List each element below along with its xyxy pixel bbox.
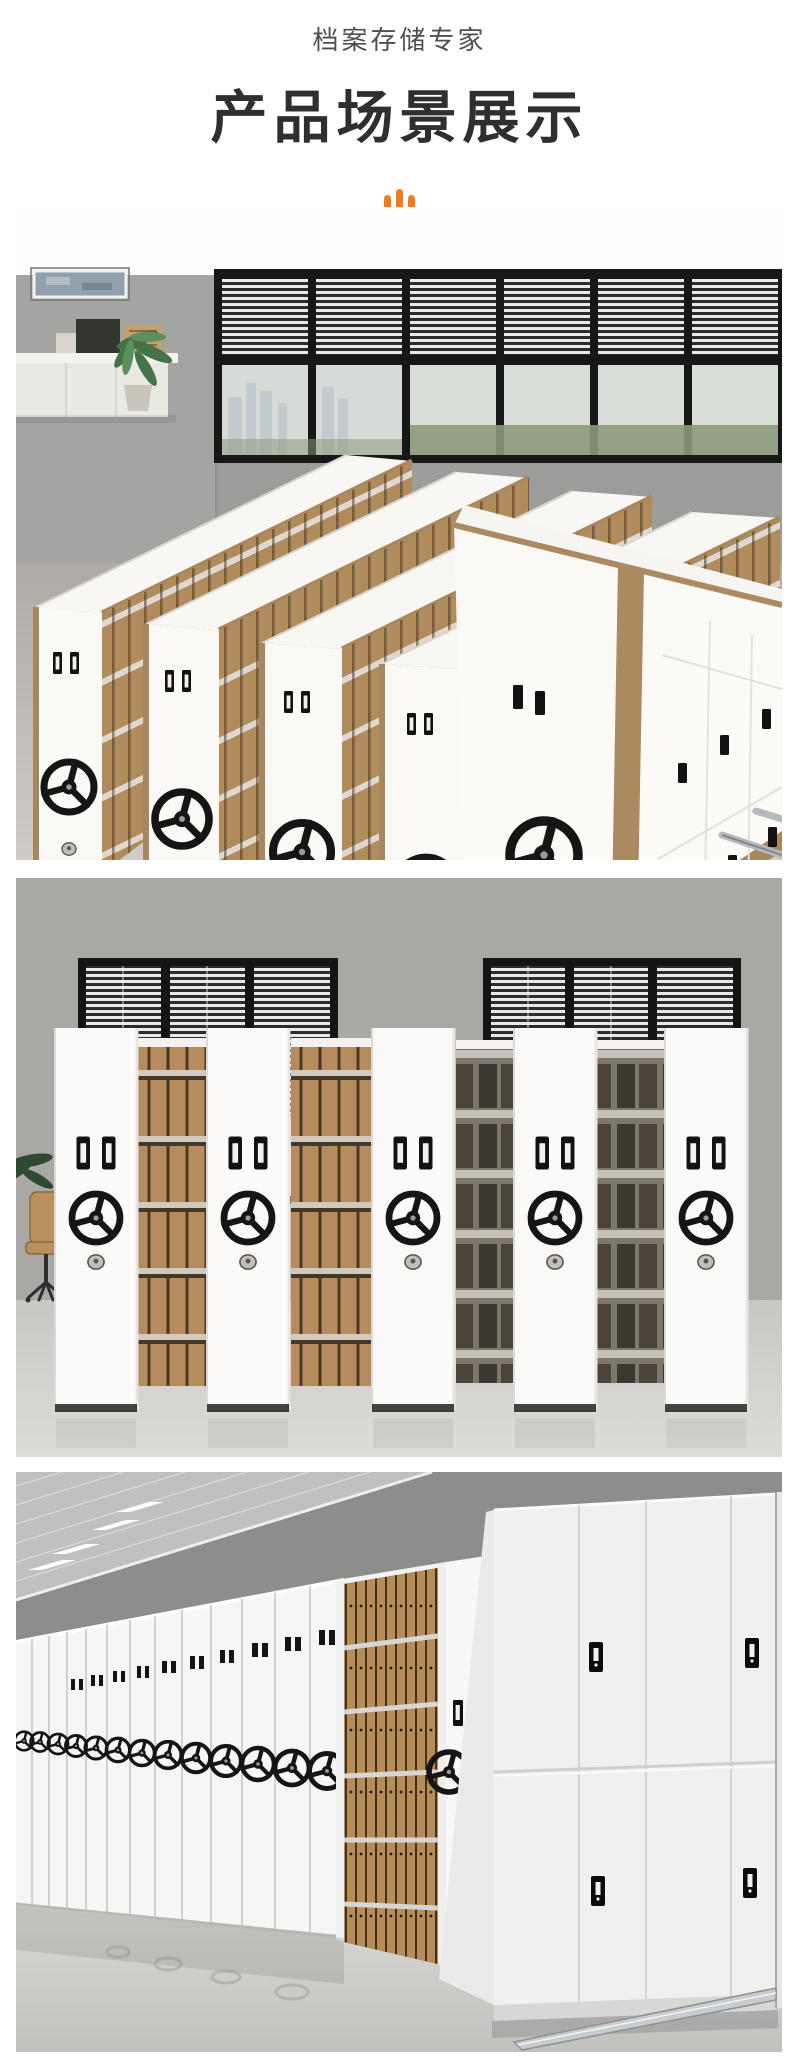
product-detail-page: 档案存储专家 产品场景展示 (0, 0, 799, 2070)
treeline (410, 425, 778, 455)
archive-room-illustration (16, 1472, 782, 2052)
mobile-unit (665, 1028, 747, 1412)
section-header: 档案存储专家 产品场景展示 (0, 0, 799, 216)
mobile-unit (372, 1028, 454, 1412)
mobile-unit (514, 1028, 596, 1412)
mobile-shelving-row (16, 1580, 347, 1937)
mobile-unit (55, 1028, 137, 1412)
scene-photo-archive-room (16, 1472, 782, 2052)
window-wall (214, 269, 782, 463)
office-perspective-illustration (16, 207, 782, 860)
wall-art-frame (31, 268, 129, 300)
mobile-unit (207, 1028, 289, 1412)
scene-photo-office-perspective (16, 207, 782, 860)
scene-photo-front-row (16, 878, 782, 1457)
front-row-illustration (16, 878, 782, 1457)
archive-cabinet (439, 1492, 782, 2021)
section-title: 产品场景展示 (0, 72, 799, 154)
section-eyebrow: 档案存储专家 (0, 20, 799, 57)
ceiling (16, 207, 782, 277)
